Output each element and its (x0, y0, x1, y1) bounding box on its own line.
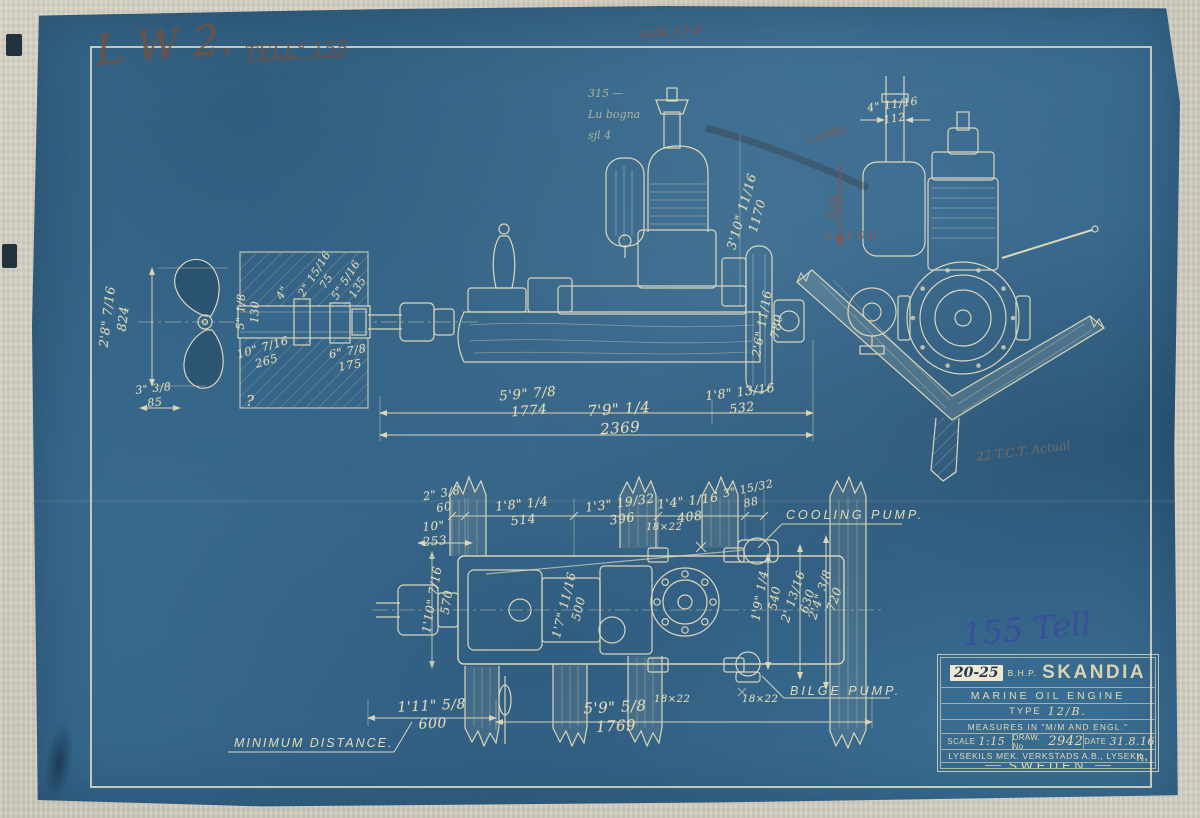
red-note-100: ≈ 100 (824, 229, 881, 243)
dim-label-253: 10" 253 (421, 518, 448, 550)
bolt-note-bottom-right: 18×22 (742, 694, 778, 707)
draw-value: 2942 (1048, 734, 1083, 749)
dim-label-85: 3" 3/8 85 (135, 380, 174, 411)
bhp-label: B.H.P. (1008, 668, 1037, 678)
type-label: TYPE (1009, 706, 1042, 717)
engine-description: MARINE OIL ENGINE (941, 688, 1155, 704)
title-block: 20-25 B.H.P. SKANDIA MARINE OIL ENGINE T… (937, 654, 1159, 772)
dim-label-600: 1'11" 5/8 600 (397, 696, 467, 735)
dim-label-1774: 5'9" 7/8 1774 (499, 384, 559, 423)
brand-name: SKANDIA (1042, 662, 1146, 684)
dim-label-question: ? (246, 392, 255, 411)
title-block-row-brand: 20-25 B.H.P. SKANDIA (941, 658, 1155, 688)
power-rating-patch: 20-25 (950, 665, 1003, 681)
dash-left (985, 765, 1001, 766)
bolt-note-top: 18×22 (646, 522, 682, 535)
dim-label-130: 5" 1/8 130 (234, 293, 263, 330)
measures-row: MEASURES IN "M/M AND ENGL." (941, 720, 1155, 734)
date-cell: DATE 31.8.16 (1083, 734, 1155, 749)
scale-label: SCALE (947, 737, 975, 746)
date-value: 31.8.16 (1110, 735, 1156, 748)
drawing-number-cell: DRAW. No 2942 (1012, 734, 1084, 749)
minimum-distance-label: MINIMUM DISTANCE. (234, 736, 393, 750)
end-view (706, 76, 1104, 481)
dim-label-2369: 7'9" 1/4 2369 (587, 398, 652, 440)
company-name: LYSEKILS MEK. VERKSTADS A.B., LYSEKIL, (941, 750, 1155, 763)
blueprint-scan: 2'8" 7/16 824 3" 3/8 85 5" 1/8 130 4" 2"… (0, 0, 1200, 818)
type-value: 12/B. (1048, 705, 1087, 718)
scale-draw-date-row: SCALE 1:15 DRAW. No 2942 DATE 31.8.16 (941, 734, 1155, 750)
scale-cell: SCALE 1:15 (941, 734, 1012, 749)
dash-right (1095, 765, 1111, 766)
engine-type-row: TYPE 12/B. (941, 704, 1155, 720)
date-label: DATE (1084, 737, 1106, 746)
cooling-pump-label: COOLING PUMP. (786, 508, 924, 522)
scale-value: 1:15 (979, 735, 1006, 748)
dim-label-514: 1'8" 1/4 514 (495, 493, 551, 530)
bilge-pump-label: BILGE PUMP. (790, 684, 901, 698)
bolt-note-bottom-left: 18×22 (654, 694, 690, 707)
pencil-notes: 315 — Lu bogna sjl 4 (588, 84, 640, 147)
country-name: SWEDEN (1009, 763, 1088, 768)
country-row: SWEDEN (941, 763, 1155, 768)
dim-label-1769: 5'9" 5/8 1769 (583, 696, 648, 737)
draw-label: DRAW. No (1013, 734, 1046, 750)
